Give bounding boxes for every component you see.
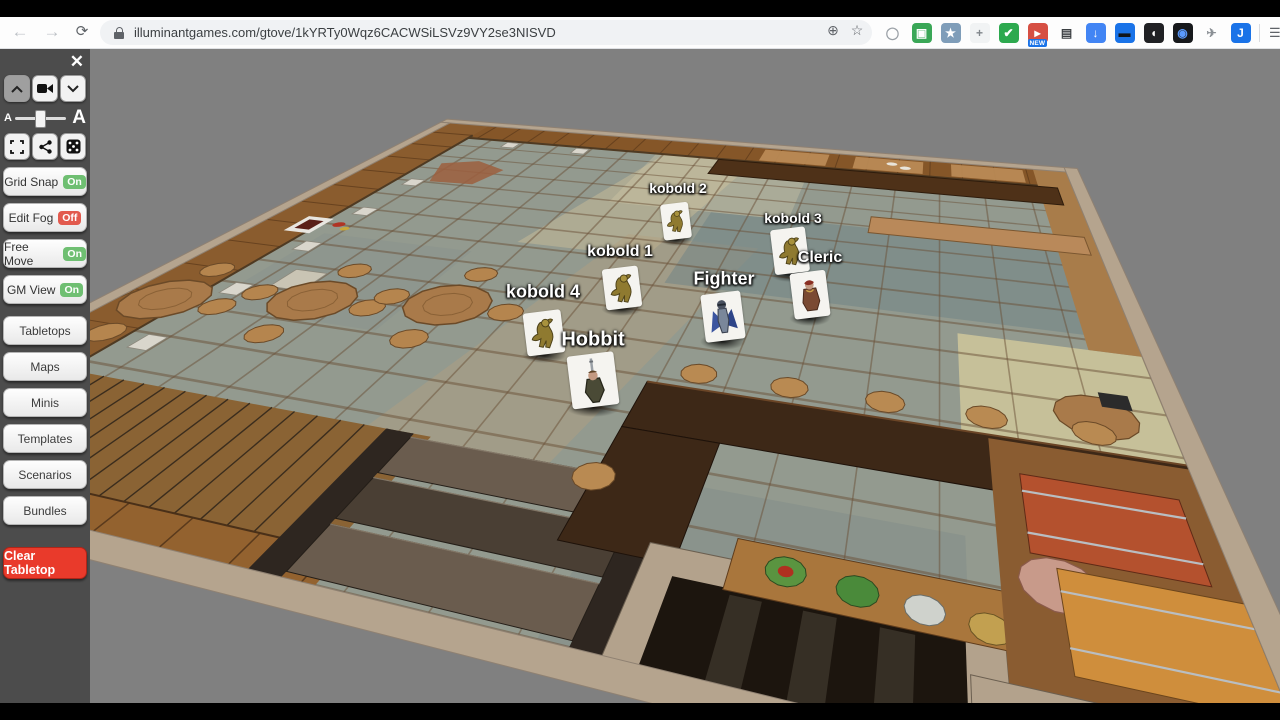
new-badge: NEW [1028,39,1048,47]
mini-token-hobbit[interactable] [566,351,619,409]
toggle-edit-fog[interactable]: Edit FogOff [3,203,87,232]
toggle-label: Free Move [4,240,58,268]
video-camera-icon [37,83,53,94]
token-label: Cleric [798,249,842,267]
extension-camera-icon[interactable]: ▸NEW [1028,23,1048,43]
extension-tray-icon[interactable]: ▤ [1057,23,1077,43]
extension-rocket-icon[interactable]: ✈ [1202,23,1222,43]
mini-token-kobold-2[interactable] [660,202,692,241]
sidebar-item-bundles[interactable]: Bundles [3,496,87,525]
token-card [700,290,746,343]
token-label: kobold 4 [506,282,580,303]
toggle-label: Grid Snap [4,175,58,189]
extension-star-box-icon[interactable]: ★ [941,23,961,43]
token-label: kobold 3 [764,210,822,226]
sidebar-item-minis[interactable]: Minis [3,388,87,417]
extension-disc-icon[interactable]: ◖ [1144,23,1164,43]
slider-handle[interactable] [35,110,46,128]
share-icon [39,140,52,154]
media-controls-icon[interactable]: ☰ [1269,25,1280,41]
extension-j-icon[interactable]: J [1231,23,1251,43]
letterbox-bottom [0,703,1280,720]
lock-icon [114,27,124,39]
token-label: Hobbit [561,329,624,352]
sidebar: ✕ A A Gri [0,47,90,703]
mini-token-kobold-1[interactable] [602,265,643,310]
clear-tabletop-button[interactable]: Clear Tabletop [3,547,87,579]
token-card [660,202,692,241]
camera-controls-row [4,75,86,102]
token-card [566,351,619,409]
extension-green-app-icon[interactable]: ▣ [912,23,932,43]
token-card [789,270,830,320]
tavern-map[interactable] [0,47,1280,703]
label-size-slider-row: A A [4,109,86,127]
toggle-grid-snap[interactable]: Grid SnapOn [3,167,87,196]
sidebar-item-scenarios[interactable]: Scenarios [3,460,87,489]
browser-toolbar: ← → ⟳ illuminantgames.com/gtove/1kYRTy0W… [0,17,1280,49]
bookmark-star-icon[interactable]: ☆ [848,21,866,39]
extension-download-icon[interactable]: ↓ [1086,23,1106,43]
url-text: illuminantgames.com/gtove/1kYRTy0Wqz6CAC… [134,25,556,40]
zoom-icon[interactable]: ⊕ [824,21,842,39]
label-size-slider[interactable] [15,117,66,120]
mini-token-cleric[interactable] [789,270,830,320]
extension-shield-check-icon[interactable]: ✔ [999,23,1019,43]
chevron-up-icon [11,85,23,93]
toggle-free-move[interactable]: Free MoveOn [3,239,87,268]
token-card [523,309,566,356]
mini-token-kobold-4[interactable] [523,309,566,356]
address-bar[interactable]: illuminantgames.com/gtove/1kYRTy0Wqz6CAC… [100,20,872,45]
label-size-small: A [4,112,12,124]
toggle-label: GM View [7,283,55,297]
camera-reset-button[interactable] [32,75,58,102]
extension-dot-box-icon[interactable]: ◉ [1173,23,1193,43]
token-label: Fighter [694,269,755,290]
sidebar-item-tabletops[interactable]: Tabletops [3,316,87,345]
back-button[interactable]: ← [8,20,32,44]
letterbox-top [0,0,1280,17]
toggle-buttons: Grid SnapOnEdit FogOffFree MoveOnGM View… [2,167,88,304]
extension-page-plus-icon[interactable]: + [970,23,990,43]
toolbar-separator [1259,24,1260,42]
dice-button[interactable] [60,133,86,160]
toggle-state-badge: On [63,247,86,261]
token-label: kobold 1 [587,243,653,261]
reload-button[interactable]: ⟳ [70,20,94,44]
sidebar-item-maps[interactable]: Maps [3,352,87,381]
utility-row [4,133,86,160]
chevron-down-icon [67,85,79,93]
extension-bars-icon[interactable]: ▬ [1115,23,1135,43]
dice-icon [66,139,81,154]
fullscreen-icon [10,140,24,154]
screen: ← → ⟳ illuminantgames.com/gtove/1kYRTy0W… [0,0,1280,720]
mini-token-fighter[interactable] [700,290,746,343]
toggle-state-badge: On [63,175,86,189]
nav-buttons: TabletopsMapsMinisTemplatesScenariosBund… [2,316,88,525]
extension-circle-icon[interactable]: ◯ [883,23,903,43]
toggle-gm-view[interactable]: GM ViewOn [3,275,87,304]
tabletop-viewport[interactable]: kobold 2kobold 3kobold 1ClericFighterkob… [0,47,1280,703]
token-label: kobold 2 [649,180,707,196]
toggle-state-badge: On [60,283,83,297]
sidebar-item-templates[interactable]: Templates [3,424,87,453]
toggle-state-badge: Off [58,211,81,225]
fullscreen-button[interactable] [4,133,30,160]
token-card [602,265,643,310]
share-button[interactable] [32,133,58,160]
extensions-row: ◯▣★+✔▸NEW▤↓▬◖◉✈J☰ [878,21,1280,45]
toggle-label: Edit Fog [9,211,54,225]
tilt-up-button[interactable] [4,75,30,102]
forward-button[interactable]: → [40,20,64,44]
tilt-down-button[interactable] [60,75,86,102]
close-icon[interactable]: ✕ [70,53,84,70]
label-size-large: A [72,107,86,129]
